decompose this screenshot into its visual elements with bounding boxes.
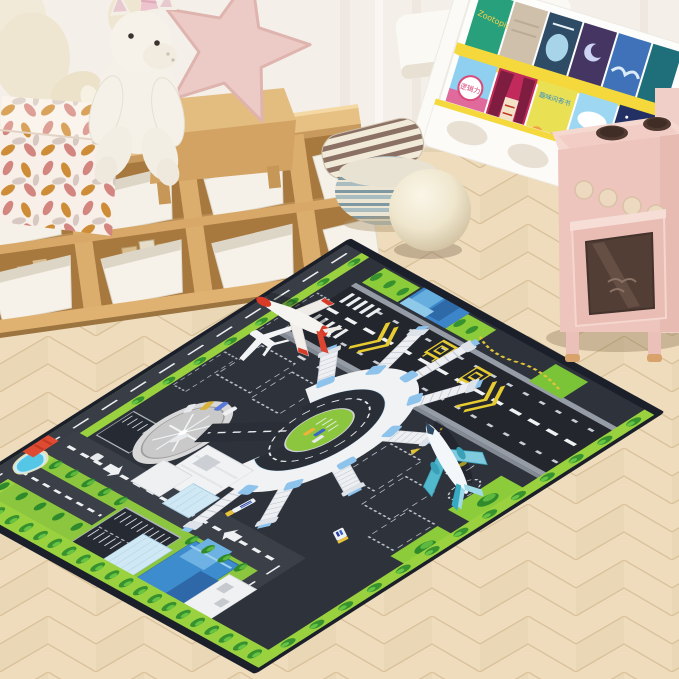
kitchen-oven — [570, 209, 666, 326]
unicorn-eye — [154, 40, 160, 46]
playroom-photo: Zootopia 逻辑力 趣味问答书 冰雪奇缘 — [0, 0, 679, 679]
unicorn-eye — [128, 33, 134, 39]
playroom-scene-svg: Zootopia 逻辑力 趣味问答书 冰雪奇缘 — [0, 0, 679, 679]
